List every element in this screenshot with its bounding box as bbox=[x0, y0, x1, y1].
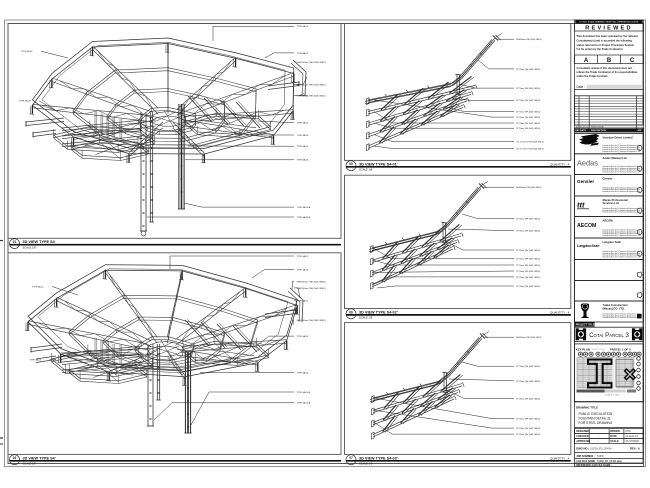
svg-text:75*75mm THK (S&S #MILD): 75*75mm THK (S&S #MILD) bbox=[516, 381, 540, 383]
svg-text:APPROVED: APPROVED bbox=[576, 440, 590, 443]
svg-text:3D VIEW TYPE S4: 3D VIEW TYPE S4 bbox=[23, 240, 56, 244]
svg-text:A: A bbox=[584, 58, 589, 64]
svg-text:status referred to in Project: status referred to in Project Procedure … bbox=[577, 43, 635, 47]
svg-text:TYPE 3A-05-A: TYPE 3A-05-A bbox=[297, 206, 311, 209]
svg-text:75*75mm THK (S&S #MILD): 75*75mm THK (S&S #MILD) bbox=[516, 434, 540, 436]
svg-text:SHS/150mm THK (S&S #MILD): SHS/150mm THK (S&S #MILD) bbox=[297, 84, 327, 86]
svg-text:TYPE 3A-02: TYPE 3A-02 bbox=[32, 285, 44, 288]
svg-text:SHS/50mm THK (S&S #MILD): SHS/50mm THK (S&S #MILD) bbox=[516, 39, 542, 41]
svg-text:SHS/150mm THK (S&S #MILD): SHS/150mm THK (S&S #MILD) bbox=[297, 281, 327, 283]
svg-text:Estrada da Baia de N. Senhora: Estrada da Baia de N. Senhora da Esperan… bbox=[603, 234, 640, 237]
svg-text:SCALE 1:2500: SCALE 1:2500 bbox=[592, 348, 606, 351]
svg-text:TYPE 3A-03: TYPE 3A-03 bbox=[30, 359, 42, 362]
svg-text:JOB NUMBER :: JOB NUMBER : bbox=[576, 455, 595, 458]
svg-text:Consultants(s) and is accorded: Consultants(s) and is accorded the follo… bbox=[577, 39, 633, 43]
svg-text:(Macau) CO. LTD.: (Macau) CO. LTD. bbox=[603, 306, 625, 310]
svg-text:DATE: DATE bbox=[610, 435, 617, 438]
svg-text:PROJECT TITLE: PROJECT TITLE bbox=[576, 324, 595, 327]
svg-text:75*75mm THK (S&S #MILD): 75*75mm THK (S&S #MILD) bbox=[516, 286, 540, 288]
svg-text:TYPE 3A-05: TYPE 3A-05 bbox=[297, 145, 309, 148]
svg-text:TYPE 3A-03: TYPE 3A-03 bbox=[297, 159, 309, 162]
svg-text:Estrada da Baia de N. Senhora: Estrada da Baia de N. Senhora da Esperan… bbox=[603, 256, 640, 259]
svg-text:75*75mm THK (S&S #MILD): 75*75mm THK (S&S #MILD) bbox=[516, 271, 540, 273]
svg-text:REV : A: REV : A bbox=[630, 447, 640, 451]
svg-text:TYPE 3A-03: TYPE 3A-03 bbox=[297, 25, 309, 28]
svg-text:75*75mm THK (S&S #MILD): 75*75mm THK (S&S #MILD) bbox=[516, 265, 540, 267]
svg-text:51530: 51530 bbox=[597, 455, 605, 458]
svg-text:REVIEWED: REVIEWED bbox=[585, 26, 632, 32]
svg-text:75*75mm THK (S&S #MILD): 75*75mm THK (S&S #MILD) bbox=[516, 259, 540, 261]
svg-text:SHS/150mm THK (S&S #MILD): SHS/150mm THK (S&S #MILD) bbox=[297, 62, 327, 64]
svg-text:AS SHOWN: AS SHOWN bbox=[625, 440, 639, 443]
svg-text:DO NOT SCALE DRAWING. VERIFY A: DO NOT SCALE DRAWING. VERIFY ALL DIMENSI… bbox=[579, 21, 639, 24]
svg-text:AECOM: AECOM bbox=[603, 219, 614, 223]
svg-text:07: 07 bbox=[349, 456, 353, 460]
svg-text:Aedas (Macau) Ltd.: Aedas (Macau) Ltd. bbox=[603, 156, 628, 160]
svg-text:Estrada da Baia de N. Senhora: Estrada da Baia de N. Senhora da Esperan… bbox=[603, 211, 640, 214]
svg-text:PARCEL 1 OF 3: PARCEL 1 OF 3 bbox=[610, 347, 631, 351]
svg-text:06: 06 bbox=[349, 310, 353, 314]
svg-text:DESIGNED: DESIGNED bbox=[576, 430, 589, 433]
svg-text:75*75mm THK (S&S #MILD): 75*75mm THK (S&S #MILD) bbox=[516, 231, 540, 233]
svg-text:SHS/50mm THK (S&S #MILD): SHS/50mm THK (S&S #MILD) bbox=[516, 187, 542, 189]
svg-text:Estrada da Baia de N. Senhora: Estrada da Baia de N. Senhora da Esperan… bbox=[603, 316, 640, 319]
svg-text:3D VIEW TYPE S4': 3D VIEW TYPE S4' bbox=[23, 456, 56, 460]
svg-text:SCALE 1/8: SCALE 1/8 bbox=[23, 462, 37, 466]
svg-text:75*75mm THK (S&S #MILD): 75*75mm THK (S&S #MILD) bbox=[516, 88, 540, 90]
svg-text:SCALE: SCALE bbox=[610, 440, 619, 443]
svg-text:Gensler: Gensler bbox=[577, 179, 594, 184]
svg-text:Estrada da Baia de N. Senhora: Estrada da Baia de N. Senhora da Esperan… bbox=[603, 190, 640, 193]
svg-text:QUANTITY : 4: QUANTITY : 4 bbox=[550, 310, 570, 314]
svg-text:3D VIEW TYPE S4-01': 3D VIEW TYPE S4-01' bbox=[359, 162, 398, 166]
svg-text:relieve the Trade Contractor o: relieve the Trade Contractor of its resp… bbox=[577, 70, 639, 74]
svg-text:75*75mm THK (S&S #MILD): 75*75mm THK (S&S #MILD) bbox=[516, 419, 540, 421]
svg-text:SCALE 1/8: SCALE 1/8 bbox=[359, 316, 373, 320]
svg-text:FIRST ISSUE: FIRST ISSUE bbox=[591, 127, 604, 129]
svg-text:01: 01 bbox=[13, 240, 17, 244]
svg-text:75*75mm THK (S&S #MILD): 75*75mm THK (S&S #MILD) bbox=[516, 111, 540, 113]
svg-text:SCALE 1:1000: SCALE 1:1000 bbox=[605, 394, 620, 397]
svg-text:75*75mm THK (S&S #MILD): 75*75mm THK (S&S #MILD) bbox=[516, 69, 540, 71]
svg-text:TYPE 3A-02: TYPE 3A-02 bbox=[297, 300, 309, 303]
svg-text:75*75mm THK (S&S #MILD): 75*75mm THK (S&S #MILD) bbox=[516, 117, 540, 119]
svg-text:LangdonSeah: LangdonSeah bbox=[577, 244, 599, 248]
svg-text:75*75mm THK (S&S #MILD): 75*75mm THK (S&S #MILD) bbox=[516, 219, 540, 221]
svg-text:02: 02 bbox=[13, 456, 17, 460]
svg-text:3D VIEW TYPE S4-02': 3D VIEW TYPE S4-02' bbox=[359, 310, 398, 314]
svg-text:SCALE 1/8: SCALE 1/8 bbox=[359, 168, 373, 172]
svg-text:Consultant review of this docu: Consultant review of this document does … bbox=[577, 66, 633, 70]
svg-text:DRAWING TITLE: DRAWING TITLE bbox=[576, 405, 598, 409]
svg-text:5.4 for action by the Trade Co: 5.4 for action by the Trade Contractor. bbox=[577, 47, 624, 51]
svg-text:ttt: ttt bbox=[577, 201, 585, 210]
svg-text:75*75mm THK (S&S #MILD): 75*75mm THK (S&S #MILD) bbox=[516, 277, 540, 279]
svg-text:51530_FD_05434: 51530_FD_05434 bbox=[590, 447, 612, 451]
svg-text:CAD FILE NAME : 51530_FD_05434: CAD FILE NAME : 51530_FD_05434.dwg bbox=[576, 460, 622, 463]
svg-text:REFERENCE CAD FILE NAME :: REFERENCE CAD FILE NAME : bbox=[576, 464, 612, 467]
svg-text:3D VIEW TYPE S4-03': 3D VIEW TYPE S4-03' bbox=[359, 456, 398, 460]
svg-text:DATE: DATE bbox=[580, 129, 586, 132]
svg-text:SHS/150mm THK (S&S #MILD): SHS/150mm THK (S&S #MILD) bbox=[297, 288, 327, 290]
svg-text:Gensler: Gensler bbox=[603, 177, 613, 181]
svg-text:QUANTITY : 4: QUANTITY : 4 bbox=[550, 456, 570, 460]
svg-text:TYPE 3A-02: TYPE 3A-02 bbox=[297, 255, 309, 258]
svg-text:05: 05 bbox=[349, 162, 353, 166]
svg-text:Estrada da Baia de N. Senhora: Estrada da Baia de N. Senhora da Esperan… bbox=[603, 150, 640, 153]
svg-text:TYPE 3A-04: TYPE 3A-04 bbox=[297, 134, 309, 137]
svg-text:TYPE 3A-05: TYPE 3A-05 bbox=[297, 268, 309, 271]
svg-text:Estrada da Baia de N. Senhora: Estrada da Baia de N. Senhora da Esperan… bbox=[603, 171, 640, 174]
svg-text:TYPE 3A-02: TYPE 3A-02 bbox=[297, 52, 309, 55]
svg-text:TYPE 3A-03: TYPE 3A-03 bbox=[297, 335, 309, 338]
svg-text:TYPE 3A-05-A: TYPE 3A-05-A bbox=[297, 402, 311, 405]
svg-text:L75 75*75mm THK (S&S #MILD): L75 75*75mm THK (S&S #MILD) bbox=[516, 148, 544, 150]
svg-text:CHECKED: CHECKED bbox=[576, 435, 589, 438]
svg-text:Services Ltd.: Services Ltd. bbox=[603, 201, 620, 205]
svg-text:75*75mm THK (S&S #MILD): 75*75mm THK (S&S #MILD) bbox=[516, 250, 540, 252]
svg-text:75*75mm THK (S&S #MILD): 75*75mm THK (S&S #MILD) bbox=[516, 428, 540, 430]
svg-text:KEY PLAN: KEY PLAN bbox=[576, 347, 590, 351]
svg-text:TYPE 3A-05-B: TYPE 3A-05-B bbox=[297, 391, 311, 394]
svg-text:SCALE 1/8: SCALE 1/8 bbox=[359, 462, 373, 466]
svg-text:APP: APP bbox=[638, 129, 643, 132]
svg-text:TYPE 3A-01: TYPE 3A-01 bbox=[21, 50, 33, 53]
svg-text:TYPE 3A-02: TYPE 3A-02 bbox=[19, 100, 31, 103]
svg-text:SHS/150mm THK (S&S #MILD): SHS/150mm THK (S&S #MILD) bbox=[297, 96, 327, 98]
svg-text:FOR STEEL DRAWING: FOR STEEL DRAWING bbox=[579, 421, 613, 425]
svg-text:CHO: CHO bbox=[625, 430, 631, 433]
svg-text:Langdon Seah: Langdon Seah bbox=[603, 240, 622, 244]
svg-text:TYPE 3A-05-B: TYPE 3A-05-B bbox=[297, 216, 311, 219]
svg-text:QUANTITY : 4: QUANTITY : 4 bbox=[550, 162, 570, 166]
svg-text:DRAWN: DRAWN bbox=[610, 430, 620, 433]
svg-text:75*75mm THK (S&S #MILD): 75*75mm THK (S&S #MILD) bbox=[516, 366, 540, 368]
svg-text:TYPE 3A-03: TYPE 3A-03 bbox=[297, 122, 309, 125]
svg-text:FOUNTAIN DETAIL 31: FOUNTAIN DETAIL 31 bbox=[579, 416, 611, 420]
svg-text:This document has been reviewe: This document has been reviewed by the r… bbox=[577, 34, 638, 38]
svg-text:C: C bbox=[630, 58, 635, 64]
svg-text:75*75mm THK (S&S #MILD): 75*75mm THK (S&S #MILD) bbox=[516, 398, 540, 400]
svg-text:SHS/50mm THK (S&S #MILD): SHS/50mm THK (S&S #MILD) bbox=[516, 337, 542, 339]
svg-text:Date :: Date : bbox=[577, 85, 586, 89]
svg-text:SHS/150mm THK (S&S #MILD): SHS/150mm THK (S&S #MILD) bbox=[297, 320, 327, 322]
svg-text:SCALE 1/8: SCALE 1/8 bbox=[23, 246, 37, 250]
svg-text:01-07-15: 01-07-15 bbox=[580, 127, 589, 129]
svg-text:14-AUG-15: 14-AUG-15 bbox=[625, 435, 638, 438]
svg-text:75*75mm THK (S&S #MILD): 75*75mm THK (S&S #MILD) bbox=[516, 123, 540, 125]
svg-text:under the Trade Contract.: under the Trade Contract. bbox=[577, 74, 609, 78]
svg-text:75*75mm THK (S&S #MILD): 75*75mm THK (S&S #MILD) bbox=[516, 128, 540, 130]
svg-text:TYPE 3A-04: TYPE 3A-04 bbox=[297, 372, 309, 375]
svg-text:B: B bbox=[607, 58, 612, 64]
svg-text:L75 75*75mm THK (S&S #MILD): L75 75*75mm THK (S&S #MILD) bbox=[516, 141, 544, 143]
svg-text:Venetian Orient Limited: Venetian Orient Limited bbox=[603, 136, 633, 140]
svg-text:75*75mm THK (S&S #MILD): 75*75mm THK (S&S #MILD) bbox=[516, 100, 540, 102]
svg-text:Aedas: Aedas bbox=[577, 159, 598, 168]
svg-text:DESCRIPTION: DESCRIPTION bbox=[591, 130, 606, 132]
svg-text:AECOM: AECOM bbox=[577, 223, 596, 229]
svg-text:DWG NO :: DWG NO : bbox=[576, 447, 589, 451]
svg-text:PUBLIC CIRCULATION: PUBLIC CIRCULATION bbox=[579, 412, 613, 416]
